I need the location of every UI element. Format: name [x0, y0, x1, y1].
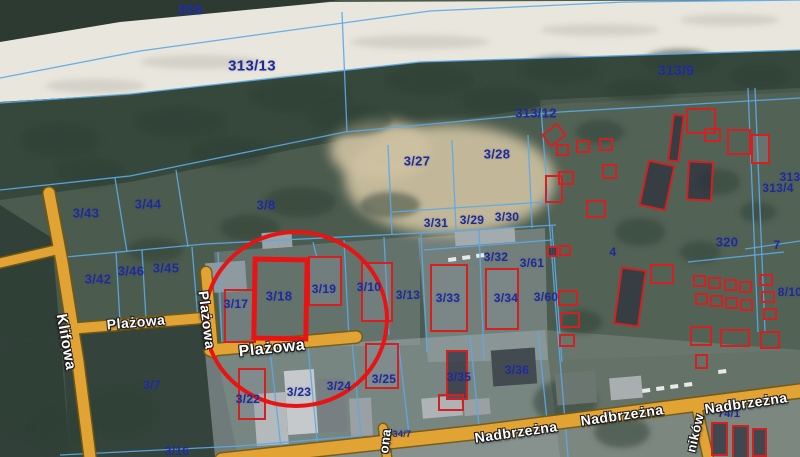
parcel-label-3-30: 3/30 [495, 210, 520, 224]
tree-canopy [385, 65, 475, 95]
parcel-boundary-line [176, 170, 188, 247]
parcel-label-3-13: 3/13 [396, 288, 421, 302]
parcel-label-8-10: 8/10 [778, 285, 800, 299]
building-outline [548, 247, 557, 256]
parcel-label-3-61: 3/61 [520, 256, 545, 270]
building-outline [733, 426, 748, 457]
parcel-label-3-24: 3/24 [327, 379, 352, 393]
beach-streak [680, 14, 780, 26]
parcel-label-313-9: 313/9 [658, 62, 695, 78]
parcel-label-3-43: 3/43 [73, 206, 100, 221]
parcel-boundary-line [116, 252, 120, 322]
tree-canopy [20, 122, 100, 158]
parcel-label-3-29: 3/29 [460, 213, 485, 227]
tree-canopy [730, 64, 790, 88]
parcel-label-3-35: 3/35 [447, 370, 472, 384]
parcel-label-3-16: 3/16 [165, 444, 190, 457]
parcel-label-3-27: 3/27 [404, 154, 431, 169]
parcel-label-313-4: 313/4 [762, 181, 794, 195]
parcel-label-3-60: 3/60 [534, 290, 559, 304]
building-roof [609, 376, 643, 401]
building-outline [712, 423, 727, 455]
parcel-label-4: 4 [610, 245, 617, 259]
building-outline [753, 429, 766, 456]
parcel-label-7: 7 [774, 238, 781, 252]
parcel-label-3-18: 3/18 [266, 289, 293, 304]
parcel-label-3-46: 3/46 [118, 264, 145, 279]
tree-canopy [520, 56, 600, 84]
parcel-label-366: 366 [177, 2, 203, 19]
parcel-label-3-23: 3/23 [287, 385, 312, 399]
parcel-label-313-13: 313/13 [228, 58, 276, 75]
parcel-label-3-34: 3/34 [494, 291, 519, 305]
parcel-label-34-7: 34/7 [393, 429, 412, 439]
parcel-label-3-36: 3/36 [505, 363, 530, 377]
parcel-label-3-45: 3/45 [153, 261, 180, 276]
map-canvas[interactable]: 366313/13313/9313/123/273/283/83/443/433… [0, 0, 800, 457]
street-label-ona: ona [376, 428, 394, 454]
parcel-label-3-32: 3/32 [484, 250, 509, 264]
parcel-label-3-28: 3/28 [484, 147, 511, 162]
parcel-label-3-8: 3/8 [257, 198, 276, 213]
tree-canopy [190, 137, 270, 167]
building-outline [752, 135, 769, 163]
tree-canopy [135, 106, 225, 138]
tree-canopy [615, 218, 665, 246]
beach-streak [45, 79, 145, 93]
parcel-label-3-19: 3/19 [312, 282, 337, 296]
beach-streak [350, 35, 490, 49]
parcel-label-313-12: 313/12 [515, 106, 557, 121]
building-outline [687, 161, 713, 200]
parcel-label-3-10: 3/10 [357, 280, 382, 294]
beach-streak [540, 24, 660, 36]
parcel-label-3-7: 3/7 [143, 378, 161, 392]
parcel-label-3-33: 3/33 [436, 291, 461, 305]
parcel-label-3-25: 3/25 [372, 372, 397, 386]
parcel-label-3-42: 3/42 [85, 272, 112, 287]
parcel-boundary-line [115, 178, 127, 252]
parcel-label-3-17: 3/17 [224, 297, 249, 311]
parcel-label-3-31: 3/31 [424, 216, 449, 230]
tree-canopy [740, 202, 776, 222]
tree-canopy [604, 78, 676, 102]
tree-canopy [55, 158, 125, 186]
parcel-label-320: 320 [716, 235, 739, 250]
parcel-label-3-44: 3/44 [135, 197, 162, 212]
parcel-label-3-22: 3/22 [236, 392, 261, 406]
